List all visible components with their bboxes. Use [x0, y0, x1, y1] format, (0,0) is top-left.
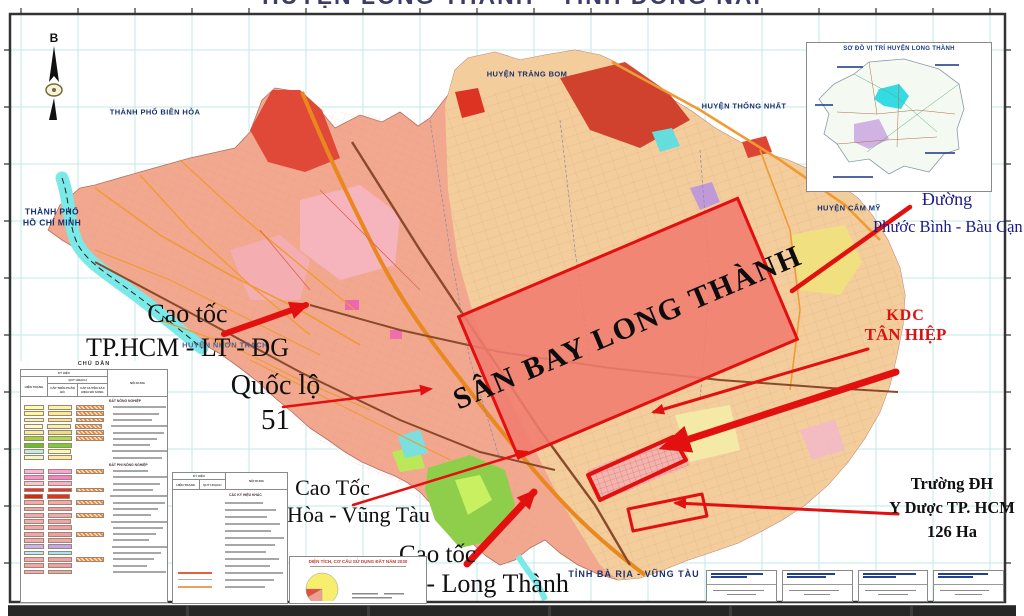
title-block — [706, 570, 1004, 602]
legend-ky-hieu-khac: KÝ HIỆU HIỆN TRẠNG QUY HOẠCH NỘI DUNG CÁ… — [172, 472, 288, 604]
legend2-col-hien-trang: HIỆN TRẠNG — [173, 480, 200, 489]
signature-block — [933, 570, 1004, 602]
legend2-col-ky-hieu: KÝ HIỆU — [173, 473, 225, 480]
legend-chu-dan: CHÚ DẪN KÝ HIỆU HIỆN TRẠNG QUY HOẠCH CẤP… — [20, 361, 168, 602]
annotation-quoc-lo-51: Quốc lộ 51 — [228, 371, 323, 437]
page-title: HUYỆN LONG THÀNH - TỈNH ĐỒNG NAI — [0, 0, 1024, 10]
legend-col-cap-huyen: CẤP HUYỆN XÁC ĐỊNH BỔ SUNG — [78, 384, 107, 396]
arrow-kdc-1 — [654, 349, 868, 412]
pie-title: DIỆN TÍCH, CƠ CẤU SỬ DỤNG ĐẤT NĂM 2030 — [290, 559, 426, 564]
legend1-rows: ĐẤT NÔNG NGHIỆPĐẤT PHI NÔNG NGHIỆP — [21, 399, 167, 575]
map-sheet: HUYỆN LONG THÀNH - TỈNH ĐỒNG NAI — [0, 0, 1024, 616]
legend-col-hien-trang: HIỆN TRẠNG — [21, 377, 48, 396]
legend-col-cap-tren: CẤP TRÊN PHÂN BỔ — [48, 384, 78, 396]
annotation-kdc-tan-hiep: KDC TÂN HIỆP — [858, 307, 953, 345]
annotation-cao-toc-hcm: Cao tốc TP.HCM - LT - DG — [80, 300, 295, 362]
bottom-banner-strip — [8, 605, 1016, 616]
signature-block — [706, 570, 777, 602]
legend-col-noi-dung: NỘI DUNG — [108, 370, 167, 396]
area-structure-chart: DIỆN TÍCH, CƠ CẤU SỬ DỤNG ĐẤT NĂM 2030 — [289, 556, 427, 604]
inset-title: SƠ ĐỒ VỊ TRÍ HUYỆN LONG THÀNH — [807, 43, 991, 52]
legend2-rows — [173, 499, 287, 590]
arrow-kdc-2 — [668, 372, 896, 446]
legend-title: CHÚ DẪN — [20, 361, 168, 367]
legend2-col-quy-hoach: QUY HOẠCH — [200, 480, 226, 489]
legend-col-quy-hoach: QUY HOẠCH — [48, 377, 107, 384]
legend2-col-noi-dung: NỘI DUNG — [226, 473, 287, 489]
legend-col-ky-hieu: KÝ HIỆU — [21, 370, 107, 377]
annotation-truong-dh-y-duoc: Trường ĐH Y Dược TP. HCM 126 Ha — [885, 472, 1019, 544]
inset-location-map: SƠ ĐỒ VỊ TRÍ HUYỆN LONG THÀNH — [806, 42, 992, 192]
signature-block — [782, 570, 853, 602]
inset-map-graphic — [807, 52, 989, 186]
arrow-truong-dh — [676, 503, 898, 514]
pie-graphic — [290, 567, 424, 601]
truong-dh-rect-outline — [628, 494, 707, 531]
signature-block — [858, 570, 929, 602]
annotation-phuoc-binh-bau-can: Đường Phước Bình - Bàu Cạn — [873, 190, 1021, 236]
legend2-section: CÁC KÝ HIỆU KHÁC — [229, 493, 287, 497]
label-ba-ria: TỈNH BÀ RỊA - VŨNG TÀU — [568, 569, 699, 579]
